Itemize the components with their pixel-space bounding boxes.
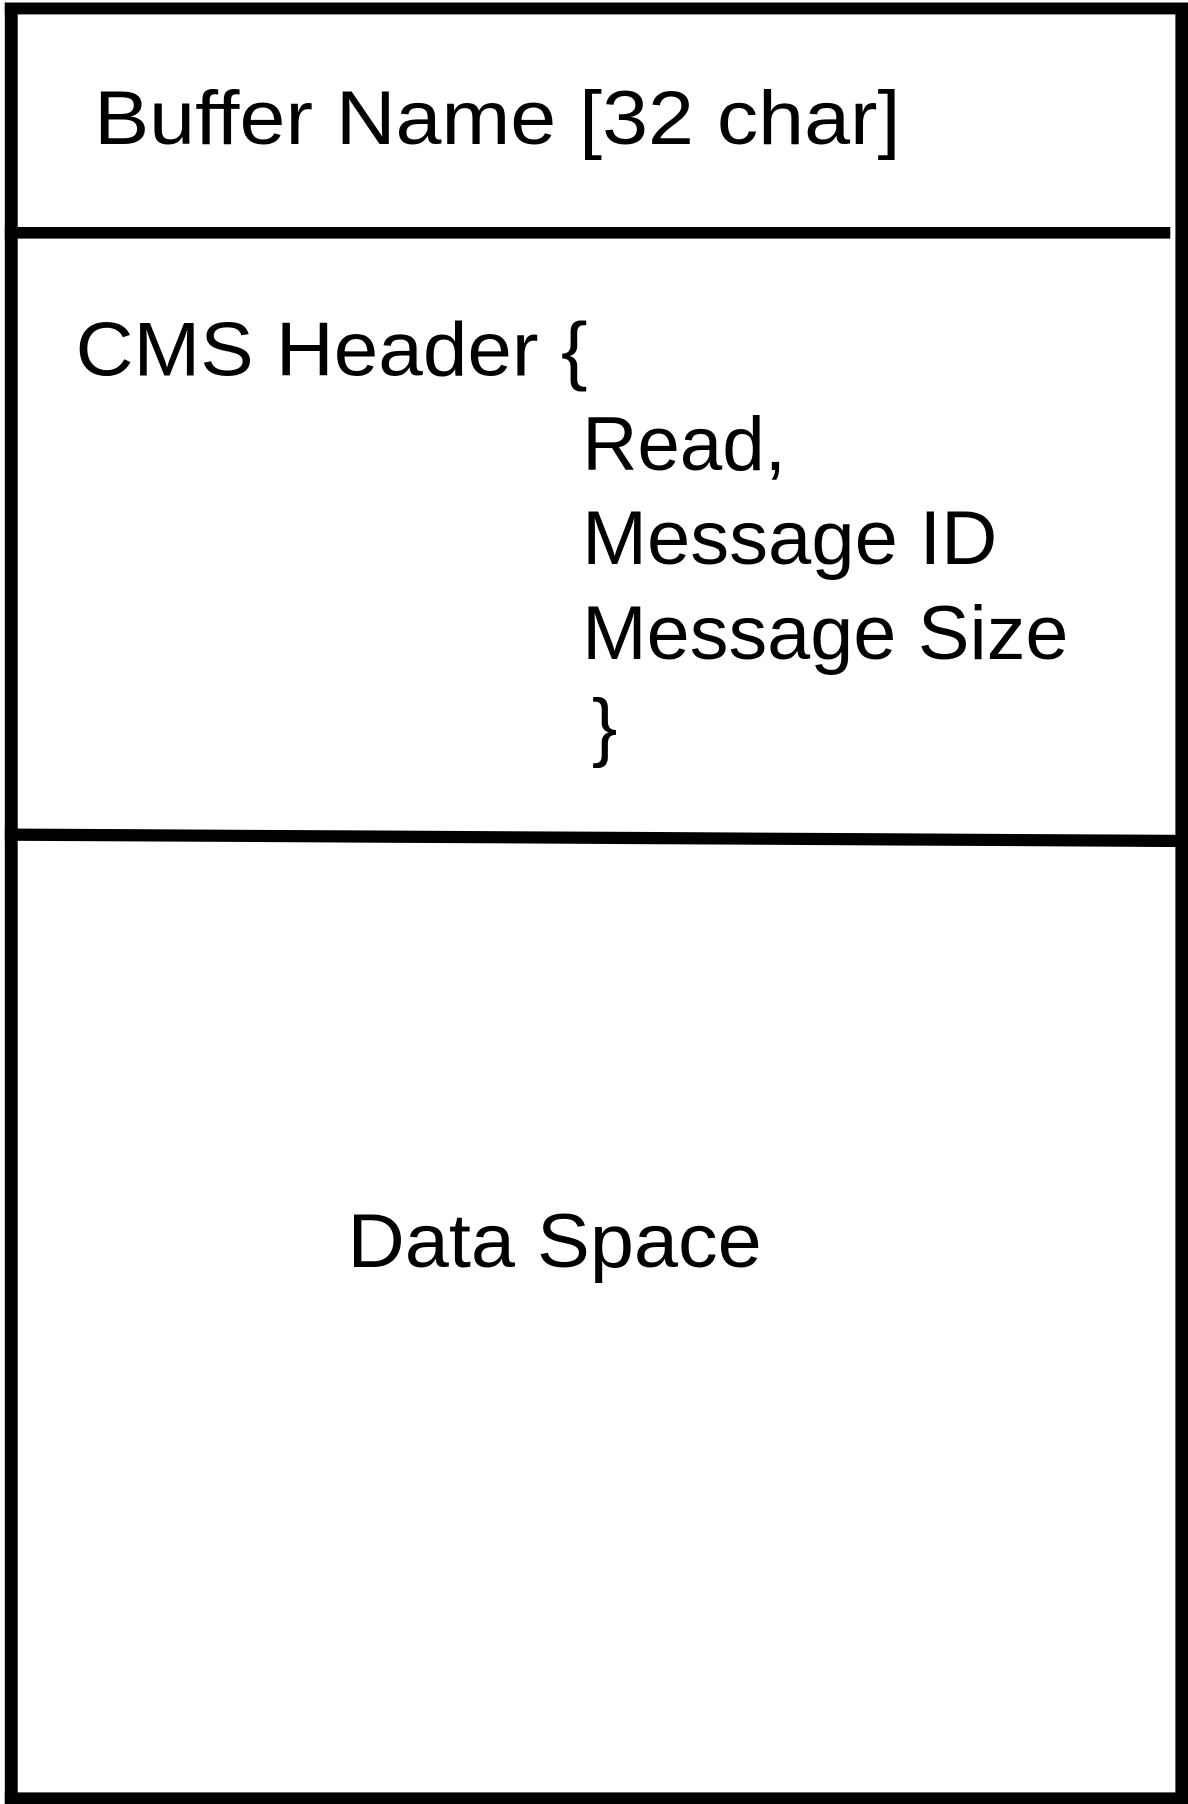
svg-text:CMS Header {: CMS Header { (76, 308, 588, 393)
svg-text:}: } (592, 684, 617, 769)
svg-text:Buffer Name [32 char]: Buffer Name [32 char] (94, 76, 900, 161)
svg-text:Read,: Read, (582, 402, 786, 487)
svg-text:Message Size: Message Size (582, 591, 1068, 676)
svg-text:Data Space: Data Space (348, 1199, 762, 1284)
svg-text:Message ID: Message ID (582, 496, 997, 581)
